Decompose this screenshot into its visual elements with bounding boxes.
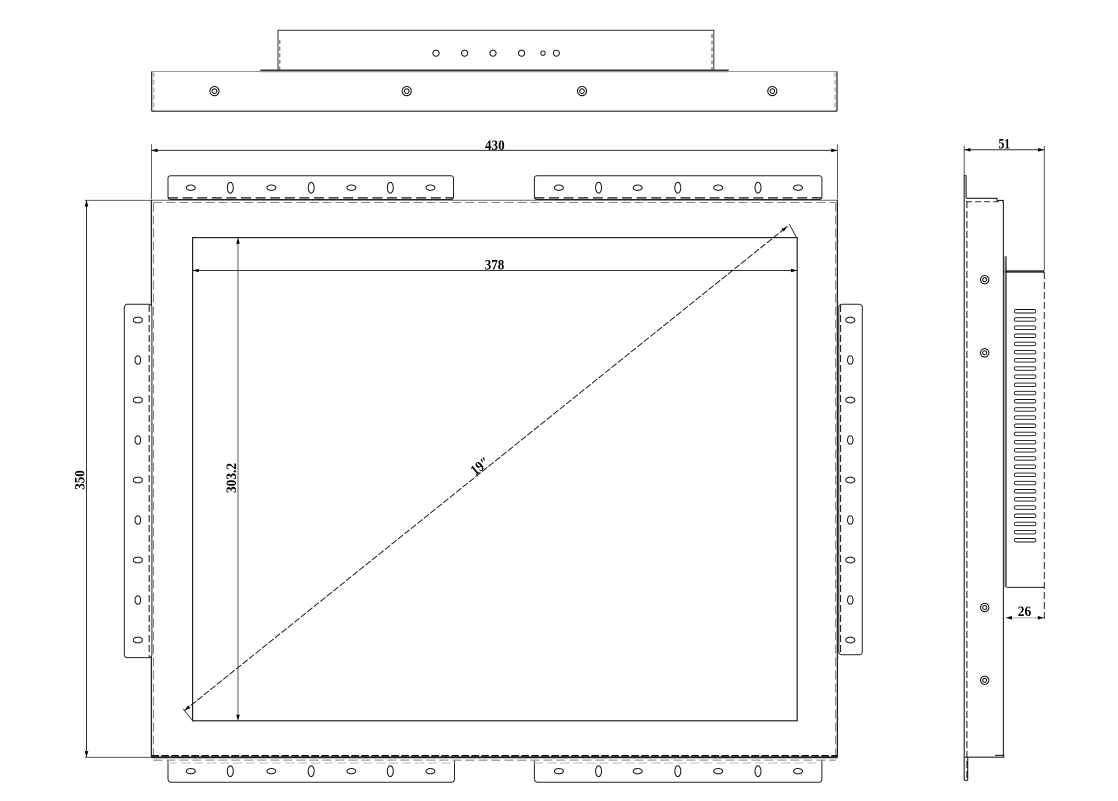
svg-text:350: 350 xyxy=(72,470,88,490)
svg-text:303.2: 303.2 xyxy=(224,463,240,493)
svg-text:378: 378 xyxy=(485,258,505,274)
svg-text:430: 430 xyxy=(485,138,505,154)
svg-text:19″: 19″ xyxy=(468,454,493,479)
svg-text:26: 26 xyxy=(1018,604,1031,620)
svg-text:51: 51 xyxy=(999,136,1011,152)
